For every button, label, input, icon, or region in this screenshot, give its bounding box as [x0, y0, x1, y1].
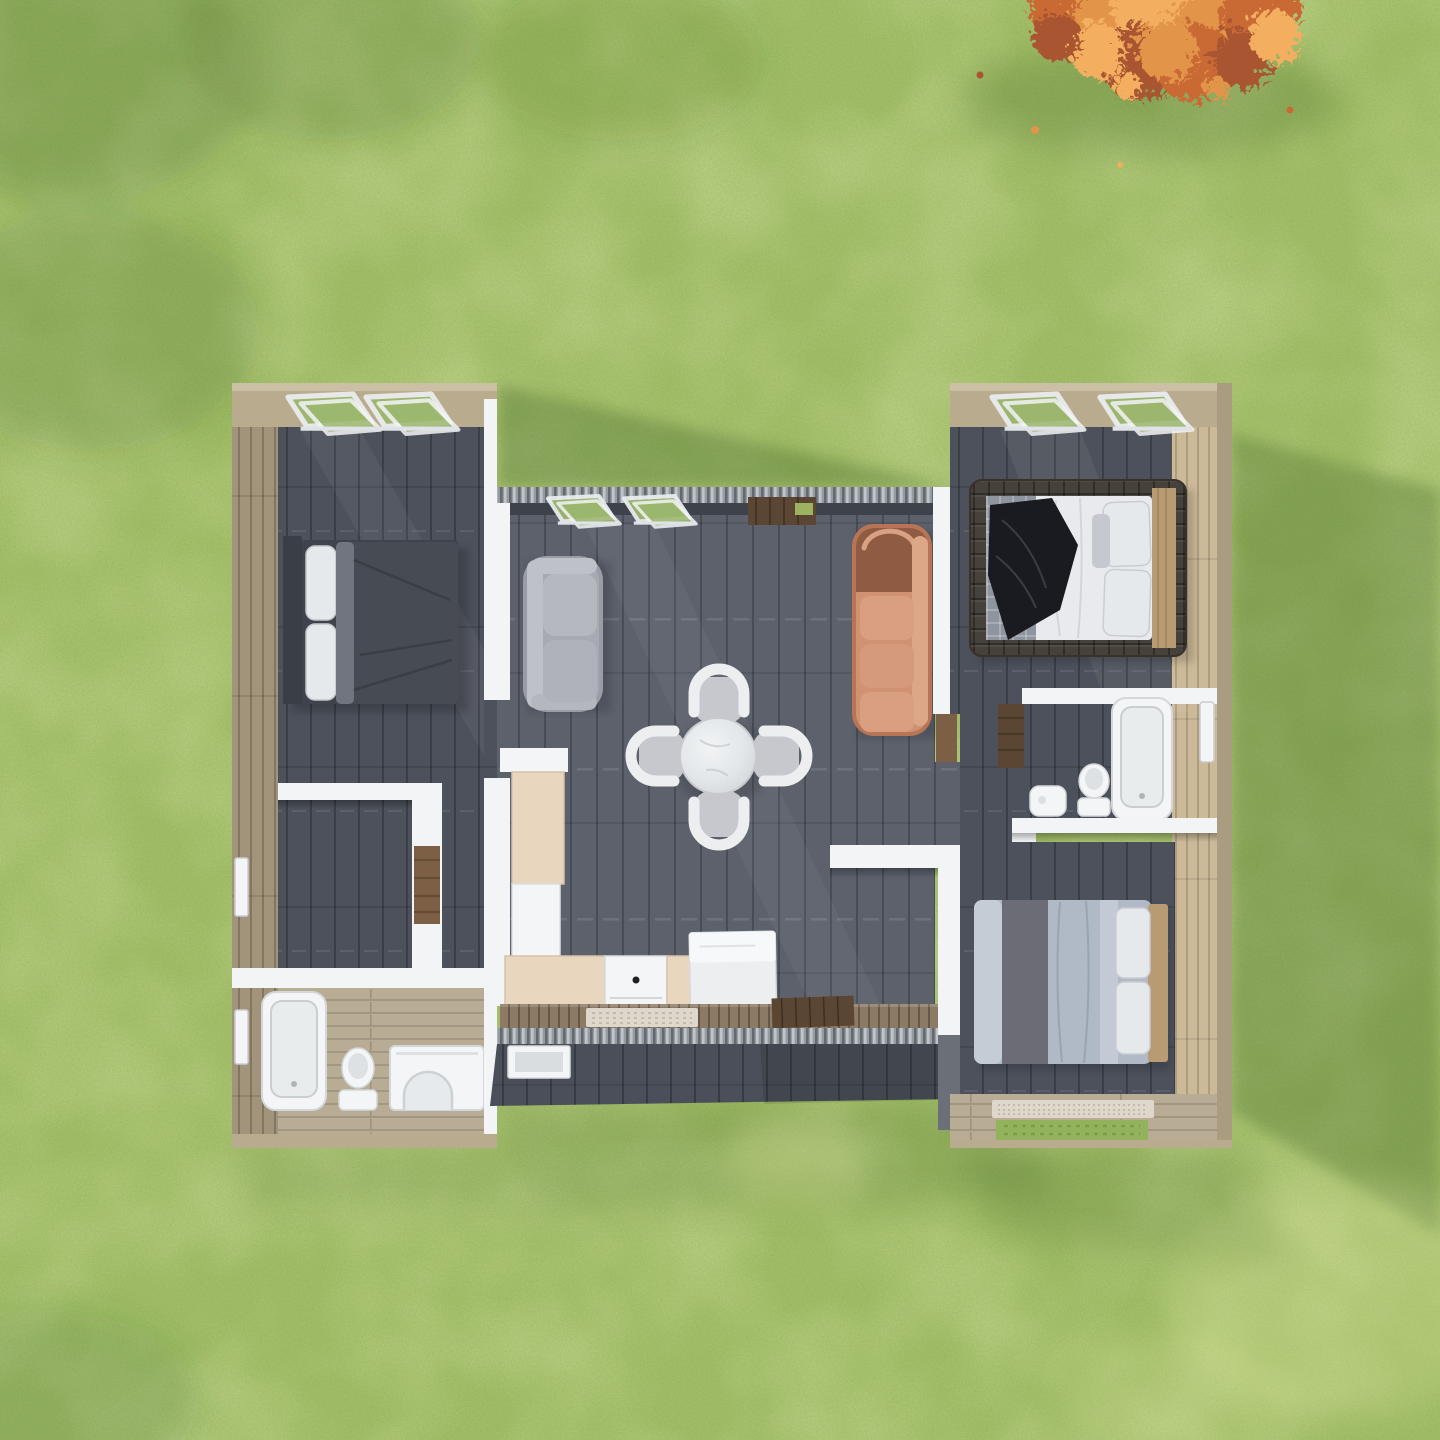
- sink: [1030, 786, 1066, 816]
- pillow-small: [1092, 514, 1110, 568]
- doormat: [586, 1008, 698, 1027]
- sheet-fold: [336, 542, 354, 704]
- bed-1: [283, 536, 468, 712]
- bed-3: [974, 900, 1170, 1070]
- bathtub: [262, 992, 326, 1110]
- wall-shadow: [278, 800, 414, 809]
- render-canvas: Top-down 3D render of a small single-sto…: [0, 0, 1440, 1440]
- floorplan-render: Top-down 3D render of a small single-sto…: [0, 0, 1440, 1440]
- dining-chair: [631, 731, 685, 781]
- bathtub: [1112, 698, 1172, 820]
- east-border: [1217, 383, 1232, 1148]
- pillow: [1103, 569, 1151, 637]
- pillow: [1103, 501, 1151, 567]
- house: [232, 383, 1232, 1148]
- headboard: [1152, 488, 1176, 648]
- west-wall: [938, 845, 960, 1035]
- oven: [605, 956, 667, 1006]
- blanket-stripe: [1002, 900, 1048, 1064]
- entry-mat-south: [772, 996, 855, 1029]
- headboard: [283, 536, 302, 704]
- roof-fascia-edge: [232, 383, 497, 391]
- toilet: [1078, 764, 1110, 816]
- headboard: [1148, 904, 1168, 1062]
- door-glass: [795, 503, 813, 515]
- entry: [748, 497, 816, 525]
- base-cabinets: [505, 956, 605, 1006]
- loveseat: [523, 556, 611, 712]
- south-window-box: [508, 1046, 570, 1078]
- rug: [992, 1100, 1154, 1118]
- bathroom-wall: [232, 968, 497, 988]
- pillow: [306, 624, 336, 700]
- wood-cabinet: [998, 704, 1024, 768]
- sofa: [852, 524, 938, 738]
- wall-shadow: [1012, 833, 1217, 842]
- dining-chair: [753, 731, 807, 781]
- deck-edge-highlight: [500, 1004, 1013, 1007]
- cabinet-white: [512, 884, 560, 960]
- bathroom-1: [232, 968, 497, 1134]
- window: [235, 858, 248, 916]
- doorway-opening: [484, 700, 497, 778]
- pillow: [1116, 908, 1150, 978]
- toilet: [339, 1048, 377, 1110]
- counter-top: [500, 748, 568, 772]
- pillow: [1116, 982, 1150, 1054]
- roof-fascia-edge: [950, 383, 1232, 391]
- tall-cabinet: [512, 772, 564, 884]
- duvet: [336, 542, 458, 704]
- dining-chair: [694, 669, 744, 723]
- roof-fascia-bottom: [232, 1134, 497, 1148]
- roof-fascia-bottom: [950, 1140, 1232, 1148]
- dining-chair: [694, 791, 744, 845]
- bed-2: [970, 480, 1194, 662]
- pillow: [306, 546, 336, 620]
- wardrobe-panel: [414, 846, 440, 924]
- right-wing: [938, 383, 1232, 1148]
- wood-niche: [936, 714, 957, 762]
- deck-boards: [500, 1004, 1013, 1030]
- passage-opening: [933, 762, 960, 845]
- master-bedroom: [950, 427, 1194, 714]
- window: [1200, 702, 1214, 762]
- partition-wall: [278, 783, 414, 800]
- sheet-edge: [974, 900, 1002, 1064]
- bathroom-wall-south: [1012, 818, 1217, 833]
- dining-table: [680, 718, 756, 794]
- washbasin-unit: [390, 1046, 484, 1110]
- floor-window-opening: [996, 1120, 1148, 1142]
- window: [235, 1010, 248, 1064]
